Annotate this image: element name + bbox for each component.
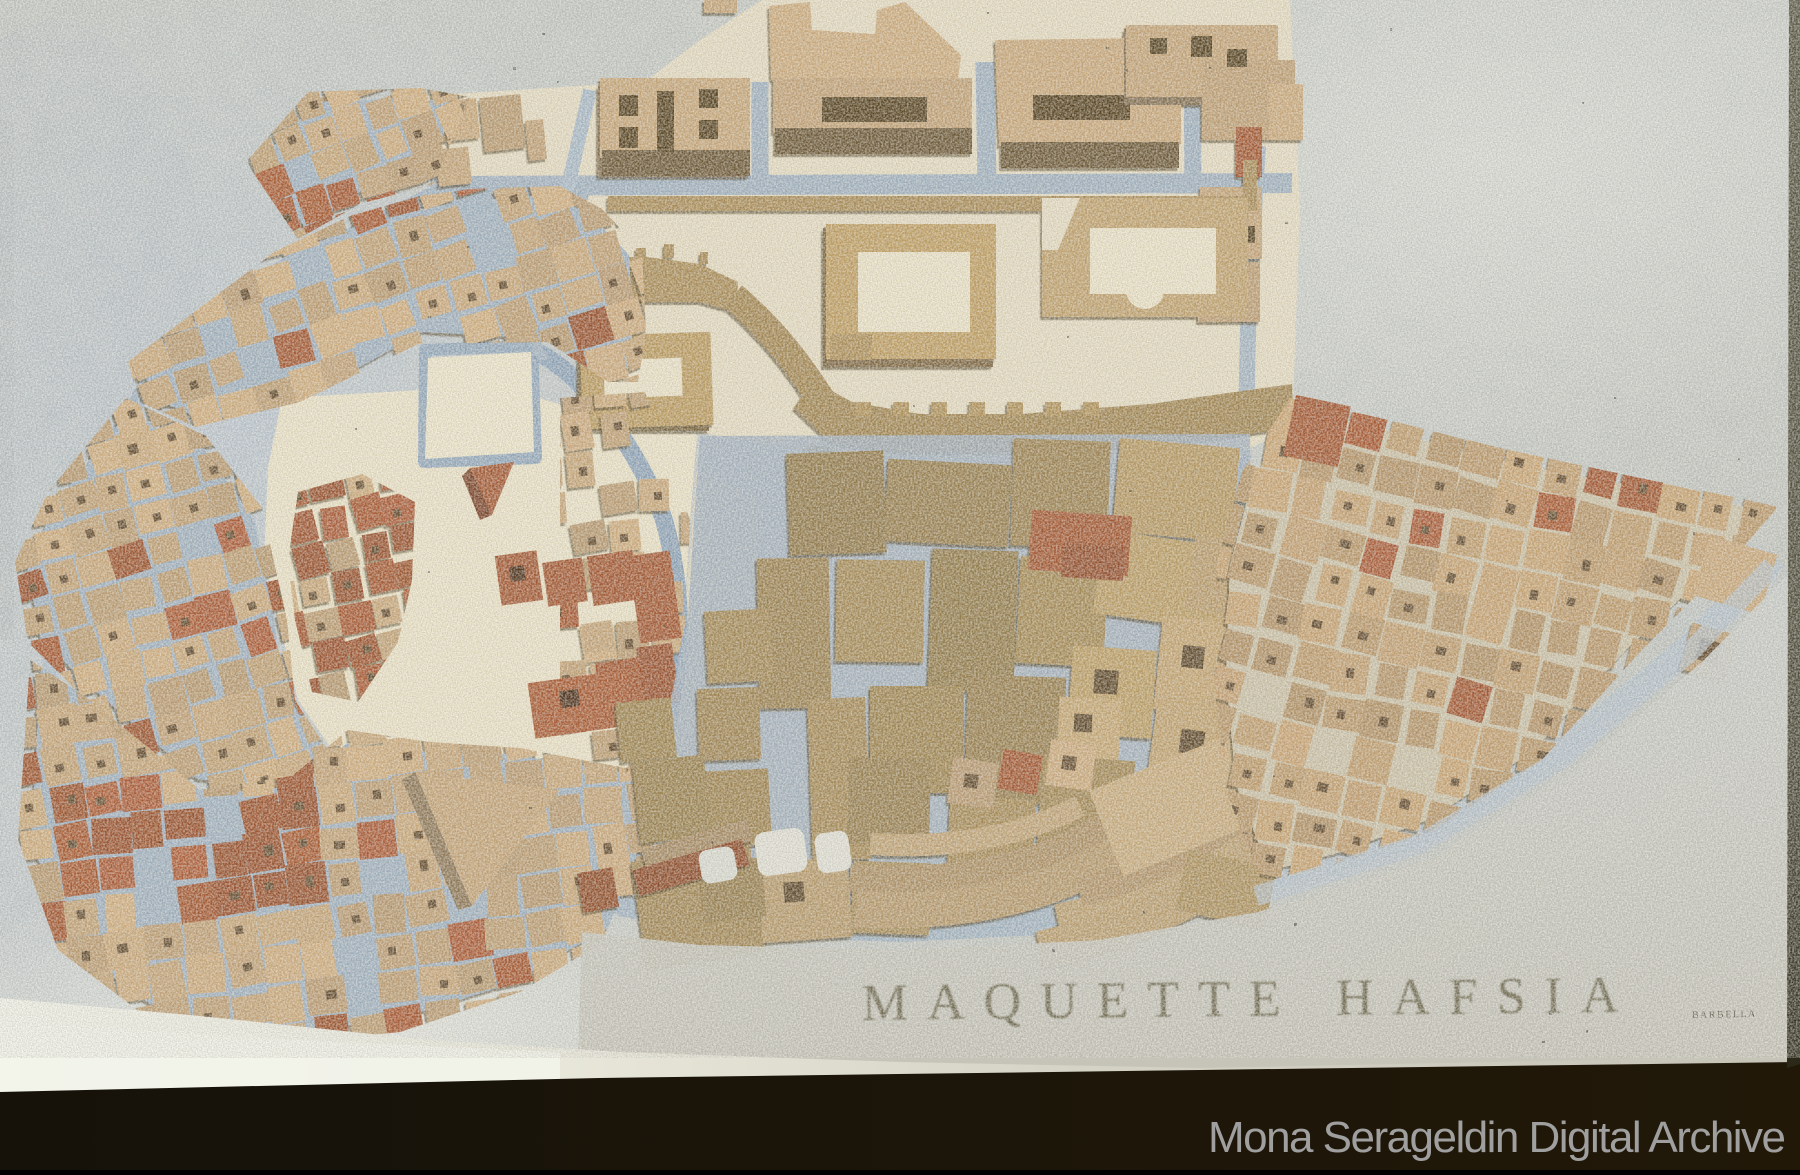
svg-text:Mona Serageldin Digital Archiv: Mona Serageldin Digital Archive (1208, 1113, 1786, 1162)
